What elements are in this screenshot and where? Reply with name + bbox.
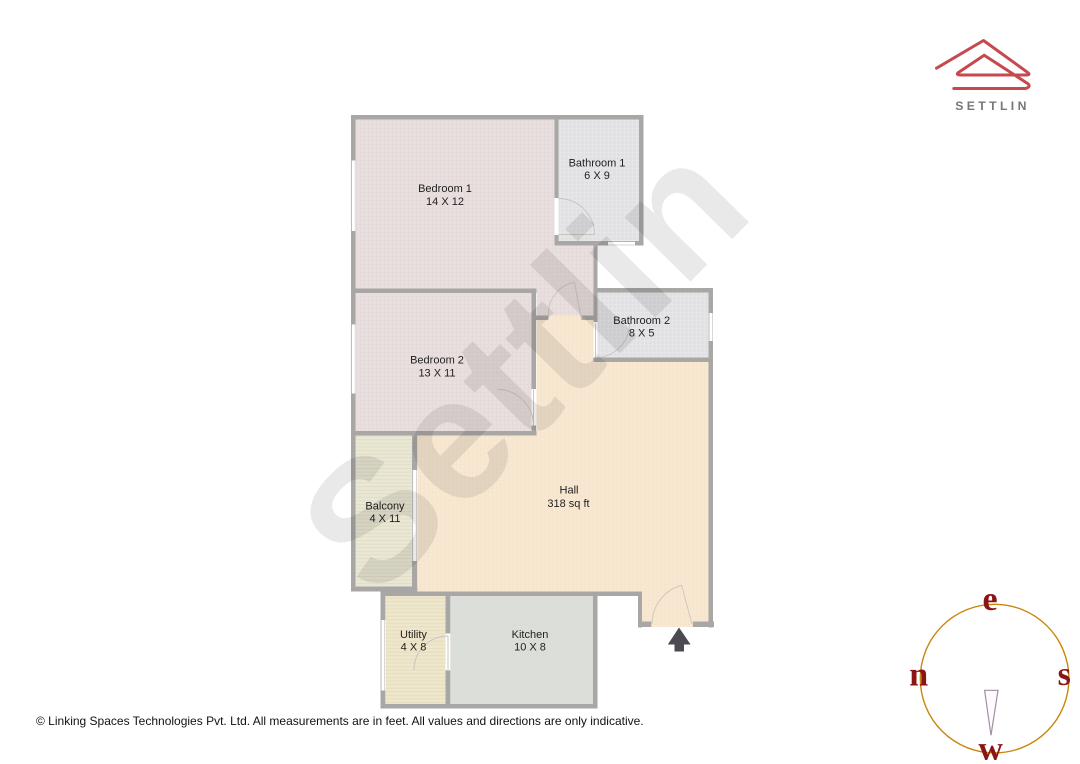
svg-text:SETTLIN: SETTLIN [955,99,1030,113]
svg-text:w: w [978,731,1003,764]
svg-text:4 X 8: 4 X 8 [401,642,427,654]
svg-text:Bedroom 1: Bedroom 1 [418,183,472,195]
svg-text:n: n [909,657,928,694]
svg-text:14 X 12: 14 X 12 [426,196,464,208]
svg-text:s: s [1058,656,1071,693]
svg-text:318 sq ft: 318 sq ft [547,498,589,510]
svg-text:© Linking Spaces Technologies: © Linking Spaces Technologies Pvt. Ltd. … [36,714,644,728]
svg-text:Utility: Utility [400,629,427,641]
svg-text:Hall: Hall [560,485,579,497]
svg-text:10 X 8: 10 X 8 [514,642,546,654]
svg-text:Kitchen: Kitchen [512,629,549,641]
svg-text:e: e [982,581,997,618]
